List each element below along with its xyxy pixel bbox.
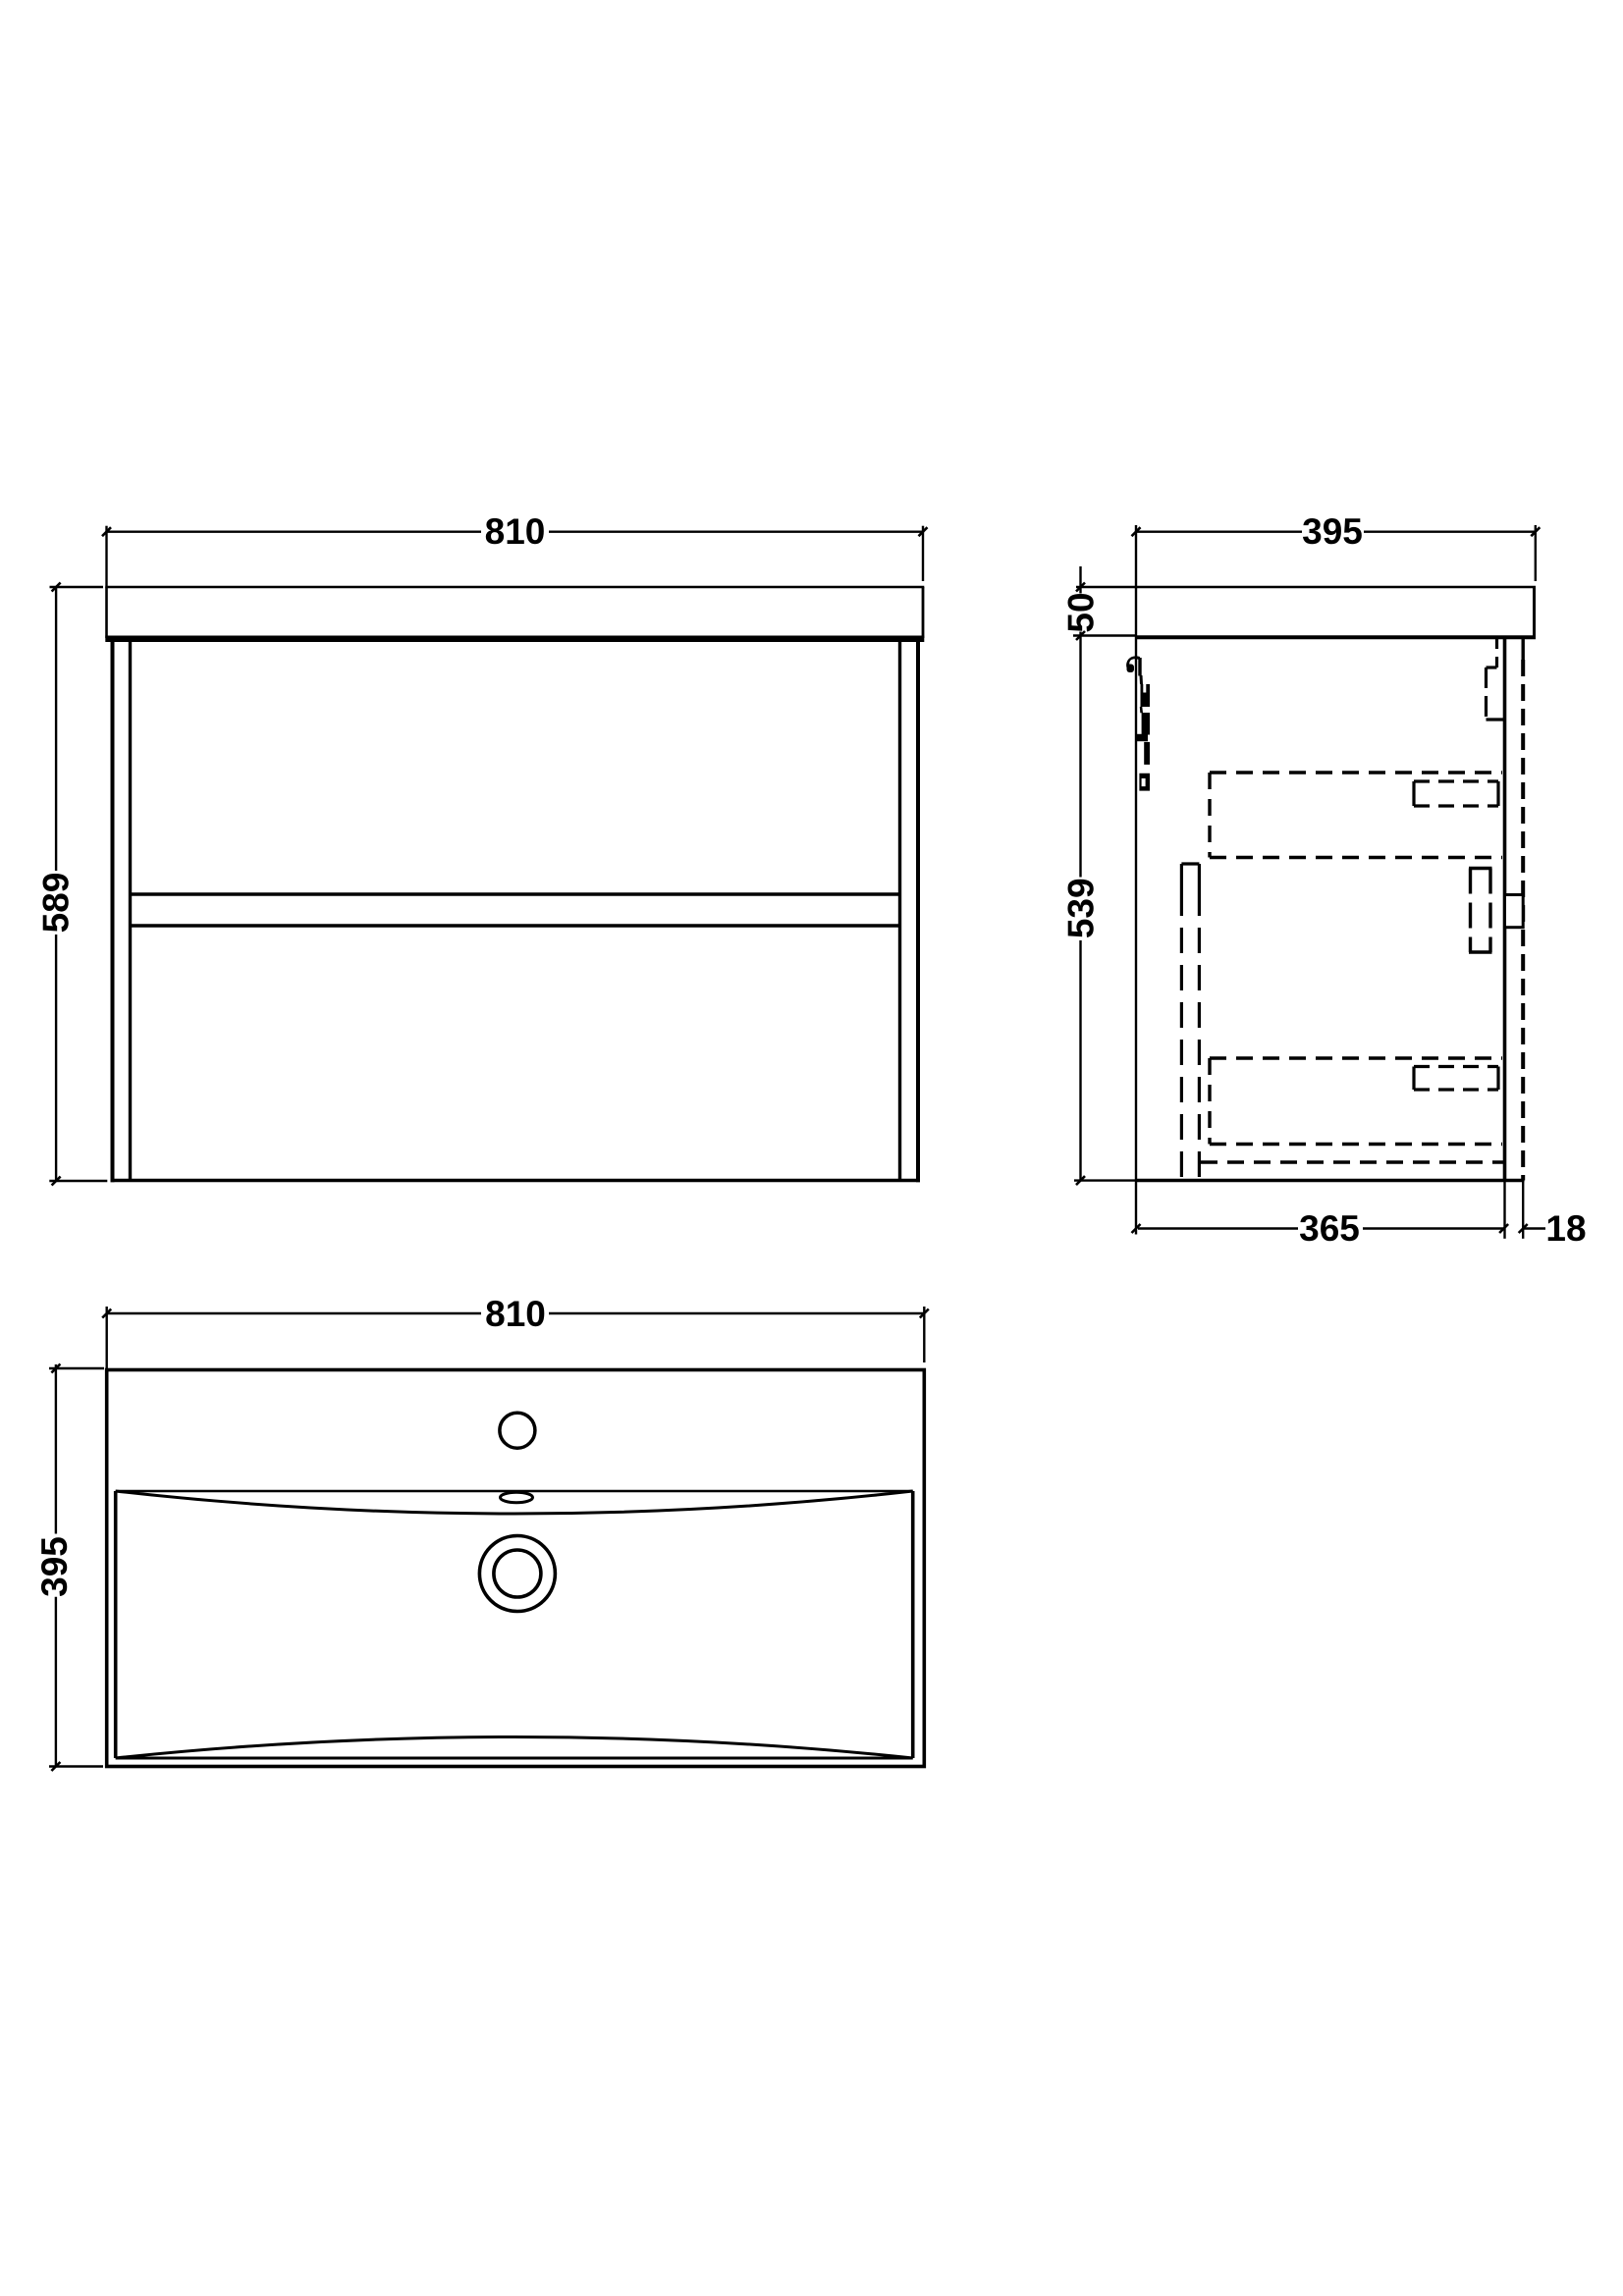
svg-text:395: 395 — [34, 1536, 75, 1597]
svg-text:589: 589 — [36, 873, 77, 934]
svg-text:810: 810 — [485, 1294, 546, 1334]
svg-text:539: 539 — [1061, 878, 1102, 938]
svg-text:365: 365 — [1299, 1208, 1360, 1249]
svg-text:50: 50 — [1060, 592, 1101, 632]
svg-text:18: 18 — [1545, 1208, 1586, 1249]
svg-text:810: 810 — [485, 511, 546, 552]
svg-text:395: 395 — [1302, 511, 1363, 552]
